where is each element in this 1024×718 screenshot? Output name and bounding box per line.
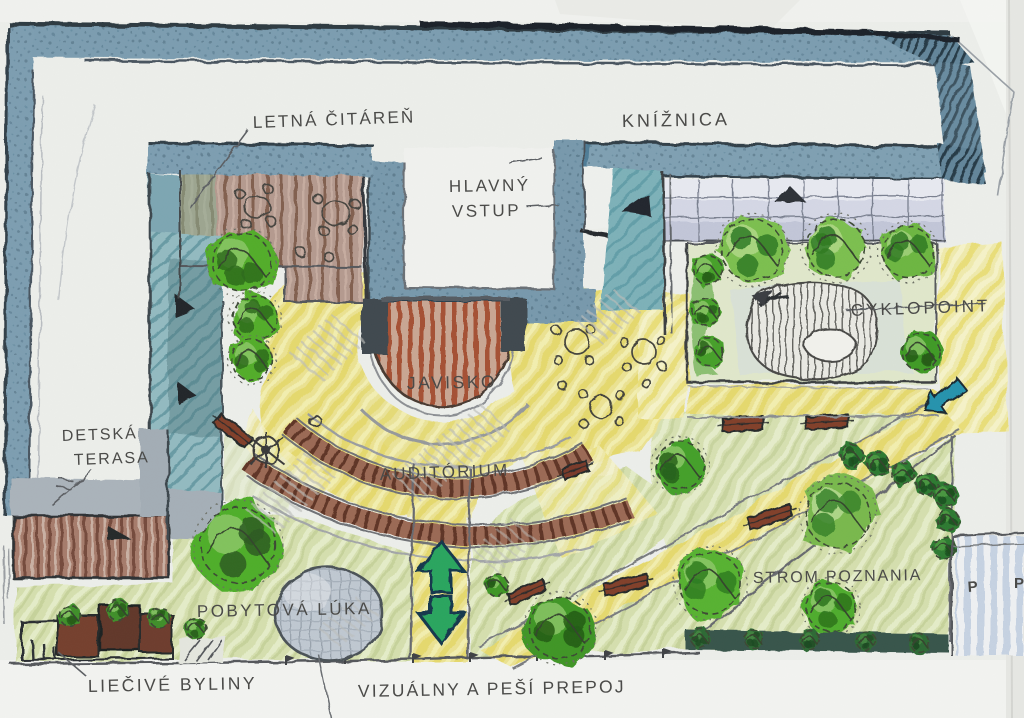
- svg-text:HLAVNÝ: HLAVNÝ: [449, 176, 531, 196]
- svg-text:VSTUP: VSTUP: [452, 201, 522, 221]
- svg-text:JAVISKO: JAVISKO: [407, 371, 497, 393]
- svg-text:LIEČIVÉ BYLINY: LIEČIVÉ BYLINY: [88, 672, 258, 696]
- svg-text:TERASA: TERASA: [74, 449, 151, 469]
- svg-text:POBYTOVÁ LÚKA: POBYTOVÁ LÚKA: [197, 599, 372, 621]
- svg-text:STROM POZNANIA: STROM POZNANIA: [753, 567, 922, 587]
- svg-text:KNÍŽNICA: KNÍŽNICA: [622, 109, 730, 131]
- svg-text:P: P: [1014, 575, 1024, 592]
- svg-text:P: P: [967, 578, 978, 596]
